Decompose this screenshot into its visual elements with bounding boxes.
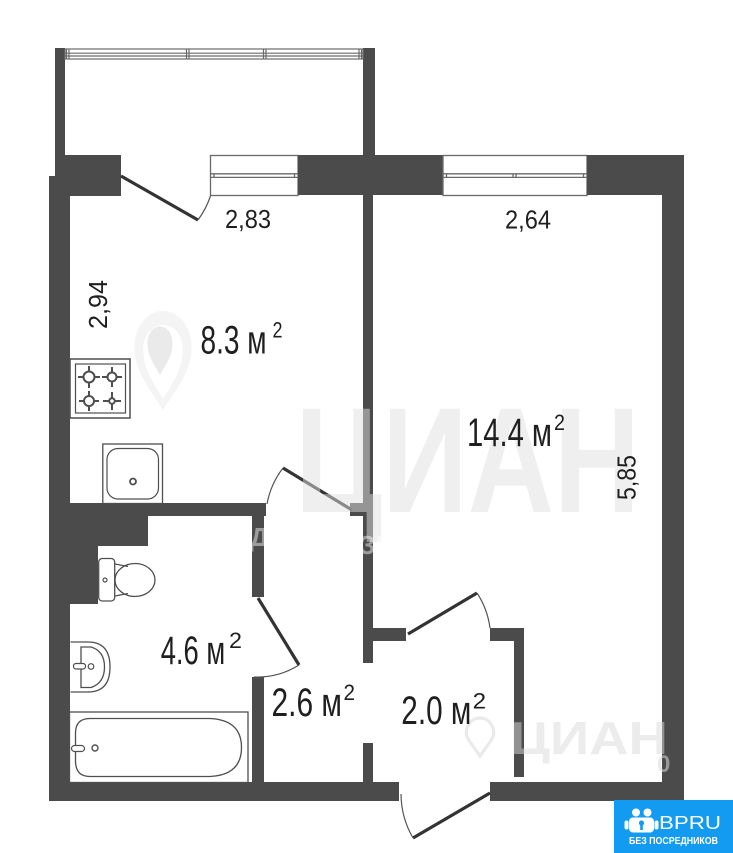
svg-text:2,64: 2,64 bbox=[505, 207, 551, 235]
svg-text:2: 2 bbox=[344, 680, 356, 705]
svg-text:ЗВ: ЗВ bbox=[359, 530, 394, 560]
svg-text:14.4 м: 14.4 м bbox=[467, 411, 552, 455]
svg-text:BPRU: BPRU bbox=[659, 813, 721, 833]
svg-text:2: 2 bbox=[554, 410, 565, 435]
svg-text:5,85: 5,85 bbox=[614, 455, 642, 500]
svg-text:2.0 м: 2.0 м bbox=[401, 689, 471, 733]
svg-text:ЦИАН: ЦИАН bbox=[510, 712, 668, 764]
svg-text:2,94: 2,94 bbox=[85, 280, 113, 329]
svg-text:8.3 м: 8.3 м bbox=[201, 319, 267, 363]
svg-text:БЕЗ ПОСРЕДНИКОВ: БЕЗ ПОСРЕДНИКОВ bbox=[629, 836, 718, 847]
svg-text:0: 0 bbox=[657, 751, 670, 778]
svg-text:4.6 м: 4.6 м bbox=[161, 629, 226, 673]
svg-text:2,83: 2,83 bbox=[225, 206, 271, 234]
svg-text:2.6 м: 2.6 м bbox=[272, 681, 343, 725]
svg-text:2: 2 bbox=[473, 689, 487, 714]
svg-text:ЦИАН: ЦИАН bbox=[295, 376, 640, 544]
svg-text:2: 2 bbox=[273, 318, 283, 343]
svg-text:2: 2 bbox=[229, 628, 242, 653]
svg-text:Д: Д bbox=[250, 522, 269, 552]
